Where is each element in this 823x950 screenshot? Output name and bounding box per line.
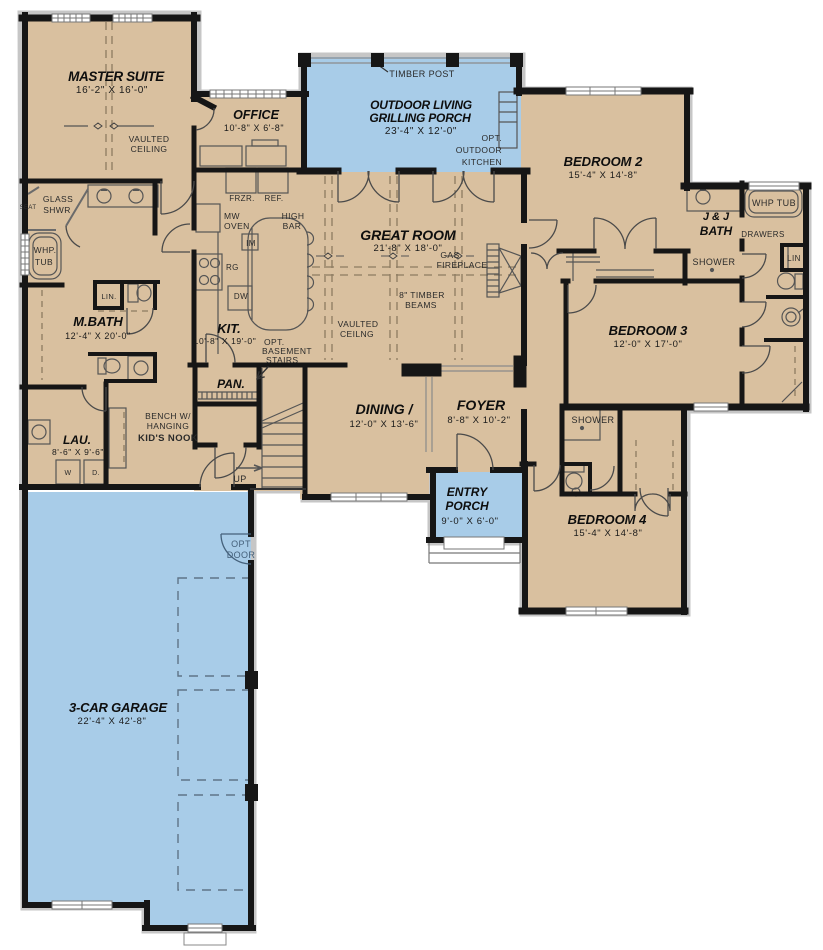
svg-text:12'-0" X 13'-6": 12'-0" X 13'-6" <box>349 419 418 430</box>
svg-text:GLASS: GLASS <box>43 194 73 204</box>
svg-text:FIREPLACE: FIREPLACE <box>437 260 488 270</box>
svg-text:WHP.: WHP. <box>34 245 57 255</box>
svg-text:8'-6" X 9'-6": 8'-6" X 9'-6" <box>52 447 104 457</box>
svg-text:KID'S NOOK: KID'S NOOK <box>138 433 198 444</box>
svg-text:IM: IM <box>246 239 256 248</box>
svg-text:15'-4" X 14'-8": 15'-4" X 14'-8" <box>573 528 642 539</box>
svg-text:12'-4" X 20'-0": 12'-4" X 20'-0" <box>65 331 131 341</box>
svg-text:FRZR.: FRZR. <box>229 194 255 203</box>
svg-text:9'-0" X 6'-0": 9'-0" X 6'-0" <box>441 516 498 527</box>
svg-text:15'-4" X 14'-8": 15'-4" X 14'-8" <box>568 170 637 181</box>
svg-text:MW: MW <box>224 211 240 221</box>
svg-text:REF.: REF. <box>265 194 284 203</box>
svg-text:STAIRS: STAIRS <box>266 355 298 365</box>
svg-text:10'-8" X 6'-8": 10'-8" X 6'-8" <box>224 123 284 133</box>
svg-text:OFFICE: OFFICE <box>233 108 279 122</box>
svg-text:W: W <box>64 470 71 477</box>
svg-text:RG: RG <box>226 263 239 272</box>
svg-text:BEDROOM 2: BEDROOM 2 <box>564 154 644 169</box>
svg-text:GAS: GAS <box>440 250 459 260</box>
svg-text:HANGING: HANGING <box>147 421 189 431</box>
svg-text:PORCH: PORCH <box>445 499 489 513</box>
svg-text:LIN: LIN <box>787 254 801 263</box>
svg-text:10'-8" X 19'-0": 10'-8" X 19'-0" <box>194 336 257 346</box>
svg-text:BEAMS: BEAMS <box>405 300 437 310</box>
svg-text:PAN.: PAN. <box>217 377 245 391</box>
svg-text:SHWR: SHWR <box>43 205 71 215</box>
svg-text:8'-8" X 10'-2": 8'-8" X 10'-2" <box>447 415 510 426</box>
svg-text:KIT.: KIT. <box>217 321 241 336</box>
svg-text:LAU.: LAU. <box>63 433 91 447</box>
svg-text:HIGH: HIGH <box>282 211 305 221</box>
svg-text:DW: DW <box>234 292 248 301</box>
svg-text:BEDROOM 3: BEDROOM 3 <box>609 323 689 338</box>
svg-text:16'-2" X 16'-0": 16'-2" X 16'-0" <box>76 85 148 96</box>
svg-text:OPT: OPT <box>231 539 251 549</box>
svg-text:D.: D. <box>92 470 100 477</box>
svg-text:GRILLING PORCH: GRILLING PORCH <box>369 111 471 125</box>
svg-text:M.BATH: M.BATH <box>73 314 123 329</box>
svg-text:DRAWERS: DRAWERS <box>741 230 784 239</box>
svg-text:GREAT ROOM: GREAT ROOM <box>360 227 456 243</box>
svg-text:22'-4" X 42'-8": 22'-4" X 42'-8" <box>77 716 146 727</box>
svg-text:OUTDOOR LIVING: OUTDOOR LIVING <box>370 98 472 112</box>
svg-text:WHP TUB: WHP TUB <box>752 198 796 208</box>
svg-text:SHOWER: SHOWER <box>572 415 615 425</box>
svg-text:FOYER: FOYER <box>457 397 506 413</box>
svg-text:TUB: TUB <box>35 257 53 267</box>
svg-text:8" TIMBER: 8" TIMBER <box>399 290 445 300</box>
svg-text:CEILNG: CEILNG <box>340 329 374 339</box>
svg-text:VAULTED: VAULTED <box>129 134 170 144</box>
svg-text:J & J: J & J <box>703 211 730 223</box>
svg-text:BENCH W/: BENCH W/ <box>145 411 191 421</box>
svg-text:UP: UP <box>233 474 246 484</box>
svg-text:VAULTED: VAULTED <box>338 319 379 329</box>
svg-text:21'-8" X 18'-0": 21'-8" X 18'-0" <box>373 243 442 254</box>
svg-text:ENTRY: ENTRY <box>447 485 488 499</box>
svg-text:BAR: BAR <box>283 221 302 231</box>
svg-text:23'-4" X 12'-0": 23'-4" X 12'-0" <box>385 126 457 137</box>
svg-text:OUTDOOR: OUTDOOR <box>456 145 502 155</box>
svg-text:KITCHEN: KITCHEN <box>462 157 502 167</box>
svg-text:BEDROOM 4: BEDROOM 4 <box>568 512 648 527</box>
svg-text:CEILING: CEILING <box>131 144 168 154</box>
svg-text:SHOWER: SHOWER <box>693 257 736 267</box>
svg-text:12'-0" X 17'-0": 12'-0" X 17'-0" <box>613 339 682 350</box>
svg-text:BATH: BATH <box>700 224 733 238</box>
svg-text:OVEN: OVEN <box>224 221 250 231</box>
svg-text:MASTER SUITE: MASTER SUITE <box>68 69 165 84</box>
svg-text:OPT.: OPT. <box>482 133 503 143</box>
svg-text:LIN.: LIN. <box>101 292 116 301</box>
svg-text:TIMBER POST: TIMBER POST <box>389 69 455 79</box>
svg-text:DINING /: DINING / <box>356 401 415 417</box>
svg-text:DOOR: DOOR <box>227 550 256 560</box>
svg-text:3-CAR GARAGE: 3-CAR GARAGE <box>69 700 168 715</box>
svg-text:SEAT: SEAT <box>20 205 37 211</box>
